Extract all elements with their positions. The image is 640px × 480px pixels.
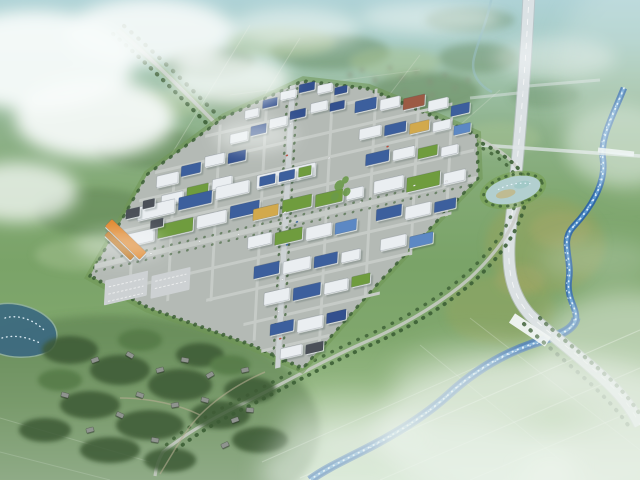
village-house bbox=[246, 407, 254, 412]
rendering-canvas bbox=[0, 0, 640, 480]
aerial-rendering bbox=[0, 0, 640, 480]
cloud-wisp bbox=[230, 8, 360, 48]
village-house bbox=[181, 357, 189, 363]
cloud bbox=[170, 54, 290, 106]
cloud-wisp bbox=[75, 230, 165, 260]
fog-bank bbox=[390, 340, 570, 420]
cloud-wisp bbox=[215, 119, 295, 151]
village-house bbox=[151, 437, 159, 443]
cloud bbox=[15, 78, 175, 158]
village-house bbox=[171, 402, 179, 408]
cloud-wisp bbox=[360, 2, 500, 34]
